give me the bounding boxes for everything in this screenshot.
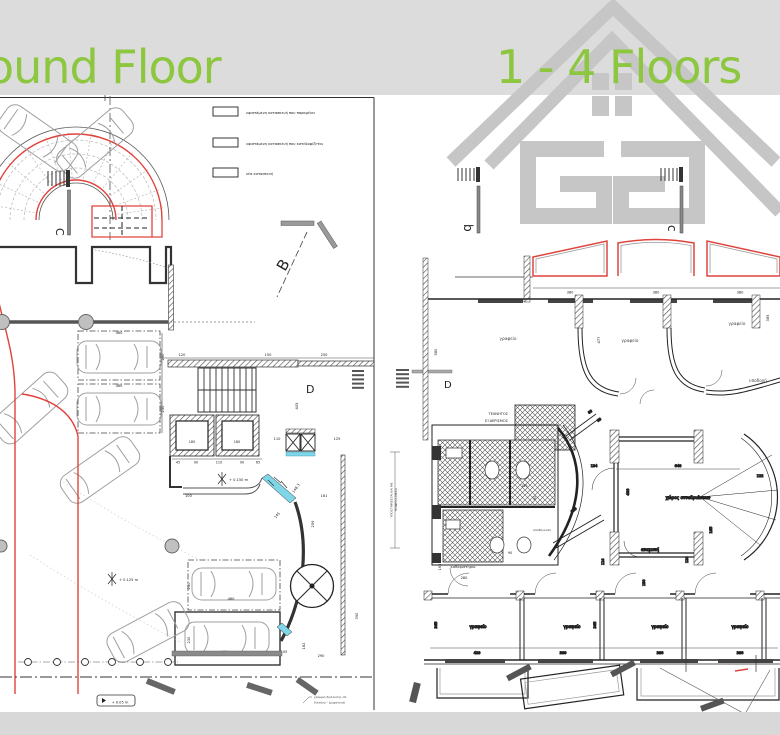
dimension-label: 640	[675, 464, 683, 468]
dimension-label: 90	[508, 551, 512, 555]
section-letter-c: c	[665, 225, 679, 232]
right-boundary: 390 290 182 105	[281, 455, 359, 658]
cyan-bridge	[262, 474, 296, 503]
dimension-label: 80	[596, 417, 602, 423]
dimension-label: 420	[474, 651, 482, 655]
level-label: + 0.05 m	[112, 701, 129, 705]
parking-area: 460 460 460 460 230 230 230 230	[0, 331, 280, 666]
dimension-label: 122	[757, 474, 764, 478]
vent-shafts	[286, 429, 315, 451]
room-label-waiting: αναμονή	[641, 547, 659, 552]
note-line: δικτύου - (μηχανικά)	[314, 701, 345, 705]
upper-floors-drawing: b c D	[390, 95, 780, 712]
room-label-office: γραφείο	[500, 336, 517, 341]
dimension-label: 120	[685, 557, 689, 563]
dimension-label: 460	[228, 597, 236, 601]
bottom-edge: + 0.05 m γραμμή διέλευσης οδ. δικτύου - …	[0, 651, 374, 706]
legend-item-new-construction: νέα κατασκευή	[246, 172, 273, 176]
legend-item-existing-demolished: υφιστάμενη κατασκευή που κατεδαφίζεται	[246, 142, 324, 146]
note-line: γραμμή διέλευσης οδ.	[314, 695, 347, 699]
room-label-meeting: χώρος συνεδριάσεων	[666, 495, 711, 500]
sheet-border	[0, 95, 374, 710]
dimension-label: 390	[355, 612, 359, 620]
dimension-label: 80	[587, 409, 593, 415]
curved-ramp	[0, 96, 169, 392]
wc-block: ΤΕΧΝΗΤΟΣ ΕΞΑΕΡΙΣΜΟΣ αποθήκευση καθαριστή…	[432, 405, 575, 586]
dimension-label: 400	[626, 488, 630, 496]
dimension-label: 385	[766, 315, 770, 322]
dimension-label: 477	[597, 337, 601, 344]
dimension-label: 65	[256, 461, 260, 465]
dimension-label: 380	[737, 651, 745, 655]
bottom-offices: γραφείο γραφείο γραφείο γραφείο 420 380 …	[424, 573, 780, 664]
dimension-label: 134	[591, 464, 599, 468]
top-offices: γραφείο γραφείο γραφείο υποδοχή 580 477 …	[434, 315, 780, 404]
level-marks: + 0.150 m + 0.125 m	[108, 472, 249, 586]
ventilation-label: ΤΕΧΝΗΤΟΣ	[487, 412, 508, 416]
dimension-label: 380	[560, 651, 568, 655]
room-label-office: γραφείο	[732, 624, 749, 629]
elevator-shafts: 180 180	[170, 415, 259, 456]
section-marker-c: C	[48, 170, 71, 236]
section-marker-d-left: D	[306, 370, 364, 396]
dimension-label: 110	[216, 461, 222, 465]
dimension-label: 90	[194, 461, 198, 465]
side-note-line: ΤΕΧΝΗΤΑ ΜΕΣΑ	[394, 487, 398, 513]
bottom-balconies	[409, 655, 779, 712]
dimension-label: 90	[240, 461, 244, 465]
section-letter-d: D	[444, 380, 452, 391]
meeting-room: χώρος συνεδριάσεων αναμονή 640 134 400 1…	[591, 430, 778, 586]
ground-floor-drawing: υφιστάμενη κατασκευή που παραμένει υφιστ…	[0, 95, 390, 712]
dimension-label: 145	[273, 511, 280, 519]
ramp-radial-hatch	[0, 130, 165, 214]
dimension-label: 380	[567, 291, 575, 295]
right-plan-title: 1 - 4 Floors	[496, 40, 741, 94]
ventilation-label: ΕΞΑΕΡΙΣΜΟΣ	[485, 419, 509, 423]
legend: υφιστάμενη κατασκευή που παραμένει υφιστ…	[213, 107, 324, 177]
legend-item-existing-kept: υφιστάμενη κατασκευή που παραμένει	[246, 111, 316, 115]
section-letter-d: D	[306, 383, 314, 396]
dimension-label: 380	[657, 651, 665, 655]
dimension-label: 120	[179, 353, 187, 357]
level-label: + 0.150 m	[229, 478, 249, 482]
top-balconies	[455, 240, 780, 303]
dimension-label: 182	[302, 643, 306, 650]
section-letter-b: B	[273, 256, 294, 274]
section-marker-b: B	[273, 221, 337, 297]
dimension-label: 365	[434, 622, 438, 629]
room-label-office: γραφείο	[729, 321, 746, 326]
section-letter-b: b	[461, 224, 475, 232]
dimension-label: 90	[533, 496, 537, 500]
section-marker-b-right: b	[458, 167, 480, 233]
dimension-label: 230	[187, 636, 191, 644]
dimension-label: 380	[653, 291, 661, 295]
dimension-label: 125	[334, 437, 341, 441]
top-wall: 380 380 380	[423, 258, 780, 440]
cyan-grate	[286, 452, 315, 456]
dimension-label: 259	[311, 520, 315, 528]
turntable	[291, 565, 334, 608]
dimension-label: 45	[176, 461, 180, 465]
elevator-label: 180	[189, 440, 195, 444]
dimension-label: 110	[601, 559, 605, 565]
slide-canvas: ound Floor 1 - 4 Floors υφιστάμενη κατασ…	[0, 0, 780, 735]
dimension-label: 161	[321, 494, 328, 498]
dimension-label: 230	[161, 353, 165, 361]
left-plan-title: ound Floor	[0, 40, 221, 94]
dimension-label: 460	[116, 384, 124, 388]
dimension-label: 380	[737, 291, 745, 295]
side-note: Ο ΕΞΑΕΡΙΣΜΟΣ ΤΟΥ ΧΩΡΟΥ ΥΠΟΣΤΗΡΙΖΕΤΑΙ ΚΑΙ…	[390, 452, 400, 548]
room-label-office: γραφείο	[564, 624, 581, 629]
dimension-label: 100	[185, 494, 193, 498]
dimension-label: 110	[274, 437, 282, 441]
dimension-label: 230	[187, 582, 191, 590]
side-note-line: ΥΠΟΣΤΗΡΙΖΕΤΑΙ ΚΑΙ ΜΕ	[390, 482, 394, 517]
section-marker-c-right: c	[661, 167, 683, 233]
room-label-reception: υποδοχή	[749, 378, 767, 383]
elevator-label: 180	[234, 440, 240, 444]
level-label: + 0.125 m	[119, 578, 139, 582]
dimension-label: 580	[434, 348, 438, 356]
dimension-label: 120	[570, 507, 578, 514]
dimension-label: 290	[318, 654, 326, 658]
ramp-red-walls	[15, 392, 78, 694]
dimension-label: 250	[321, 353, 329, 357]
dimension-label: 150	[265, 353, 273, 357]
room-label-storage: αποθήκευση	[533, 528, 551, 532]
dimension-label: 280	[461, 576, 469, 580]
dimension-label: 460	[116, 331, 124, 335]
room-label-office: γραφείο	[470, 624, 487, 629]
dimension-label: 365	[593, 622, 597, 629]
dimension-label: 155	[521, 484, 527, 488]
section-letter-c: C	[53, 228, 66, 236]
bottom-gray-band	[0, 712, 780, 735]
room-label-office: γραφείο	[622, 338, 639, 343]
building-outline	[0, 247, 255, 553]
dimension-label: 148.3	[292, 483, 301, 494]
room-label-cleaning: καθαριστήριο	[451, 565, 476, 569]
dimension-label: 405	[295, 403, 299, 410]
dimension-label: 130	[642, 580, 646, 586]
dimension-label: 165	[438, 564, 442, 571]
dimension-label: 230	[161, 405, 165, 413]
dimension-label: 185	[709, 527, 713, 534]
room-label-office: γραφείο	[652, 624, 669, 629]
